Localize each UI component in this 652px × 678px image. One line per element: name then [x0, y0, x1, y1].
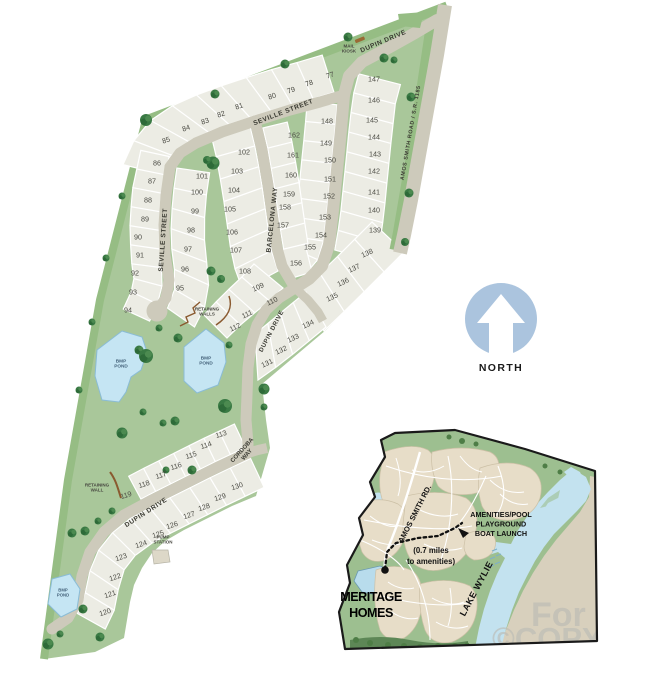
svg-text:99: 99 [191, 207, 199, 216]
svg-text:151: 151 [324, 175, 336, 184]
svg-text:87: 87 [148, 177, 156, 186]
svg-text:143: 143 [369, 150, 381, 159]
svg-text:156: 156 [290, 259, 302, 268]
svg-text:103: 103 [231, 167, 243, 176]
svg-text:95: 95 [176, 284, 184, 293]
svg-text:101: 101 [196, 172, 208, 181]
svg-text:147: 147 [368, 75, 380, 84]
svg-text:145: 145 [366, 116, 378, 125]
svg-text:155: 155 [304, 243, 316, 252]
svg-text:144: 144 [368, 133, 380, 142]
svg-text:93: 93 [129, 288, 137, 297]
svg-text:BMPPOND: BMPPOND [57, 588, 69, 598]
svg-text:149: 149 [320, 139, 332, 148]
svg-text:102: 102 [238, 148, 250, 157]
svg-text:NORTH: NORTH [479, 362, 523, 374]
svg-text:161: 161 [287, 151, 299, 160]
svg-text:90: 90 [134, 233, 142, 242]
svg-text:141: 141 [368, 188, 380, 197]
svg-text:140: 140 [368, 206, 380, 215]
svg-text:157: 157 [277, 221, 289, 230]
svg-text:96: 96 [181, 265, 189, 274]
svg-text:105: 105 [224, 205, 236, 214]
svg-text:153: 153 [319, 213, 331, 222]
svg-text:104: 104 [228, 186, 240, 195]
svg-text:139: 139 [369, 226, 381, 235]
svg-text:89: 89 [141, 215, 149, 224]
svg-text:162: 162 [288, 131, 300, 140]
svg-text:100: 100 [191, 188, 203, 197]
svg-text:150: 150 [324, 156, 336, 165]
svg-text:94: 94 [124, 306, 132, 315]
svg-text:91: 91 [136, 251, 144, 260]
svg-text:106: 106 [226, 228, 238, 237]
svg-text:148: 148 [321, 117, 333, 126]
svg-text:142: 142 [368, 167, 380, 176]
svg-text:160: 160 [285, 171, 297, 180]
svg-text:146: 146 [368, 96, 380, 105]
svg-text:86: 86 [153, 159, 161, 168]
svg-text:154: 154 [315, 231, 327, 240]
svg-text:©COPY 2: ©COPY 2 [492, 621, 628, 656]
svg-text:AMENITIES/POOLPLAYGROUNDBOAT L: AMENITIES/POOLPLAYGROUNDBOAT LAUNCH [470, 510, 532, 538]
svg-text:92: 92 [131, 269, 139, 278]
svg-text:98: 98 [187, 226, 195, 235]
svg-text:152: 152 [323, 192, 335, 201]
svg-text:159: 159 [283, 190, 295, 199]
svg-text:107: 107 [230, 246, 242, 255]
svg-text:88: 88 [144, 196, 152, 205]
svg-text:97: 97 [184, 245, 192, 254]
svg-text:158: 158 [279, 203, 291, 212]
svg-text:108: 108 [239, 267, 251, 276]
